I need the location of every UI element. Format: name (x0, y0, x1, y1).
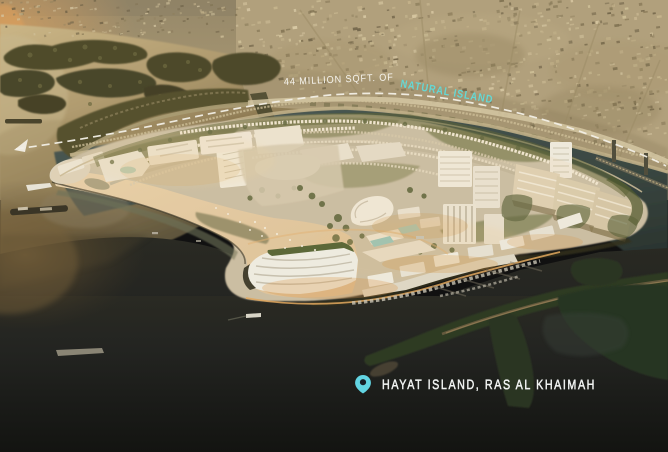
svg-text:HAYAT ISLAND, RAS AL KHAIMAH: HAYAT ISLAND, RAS AL KHAIMAH (382, 377, 596, 392)
